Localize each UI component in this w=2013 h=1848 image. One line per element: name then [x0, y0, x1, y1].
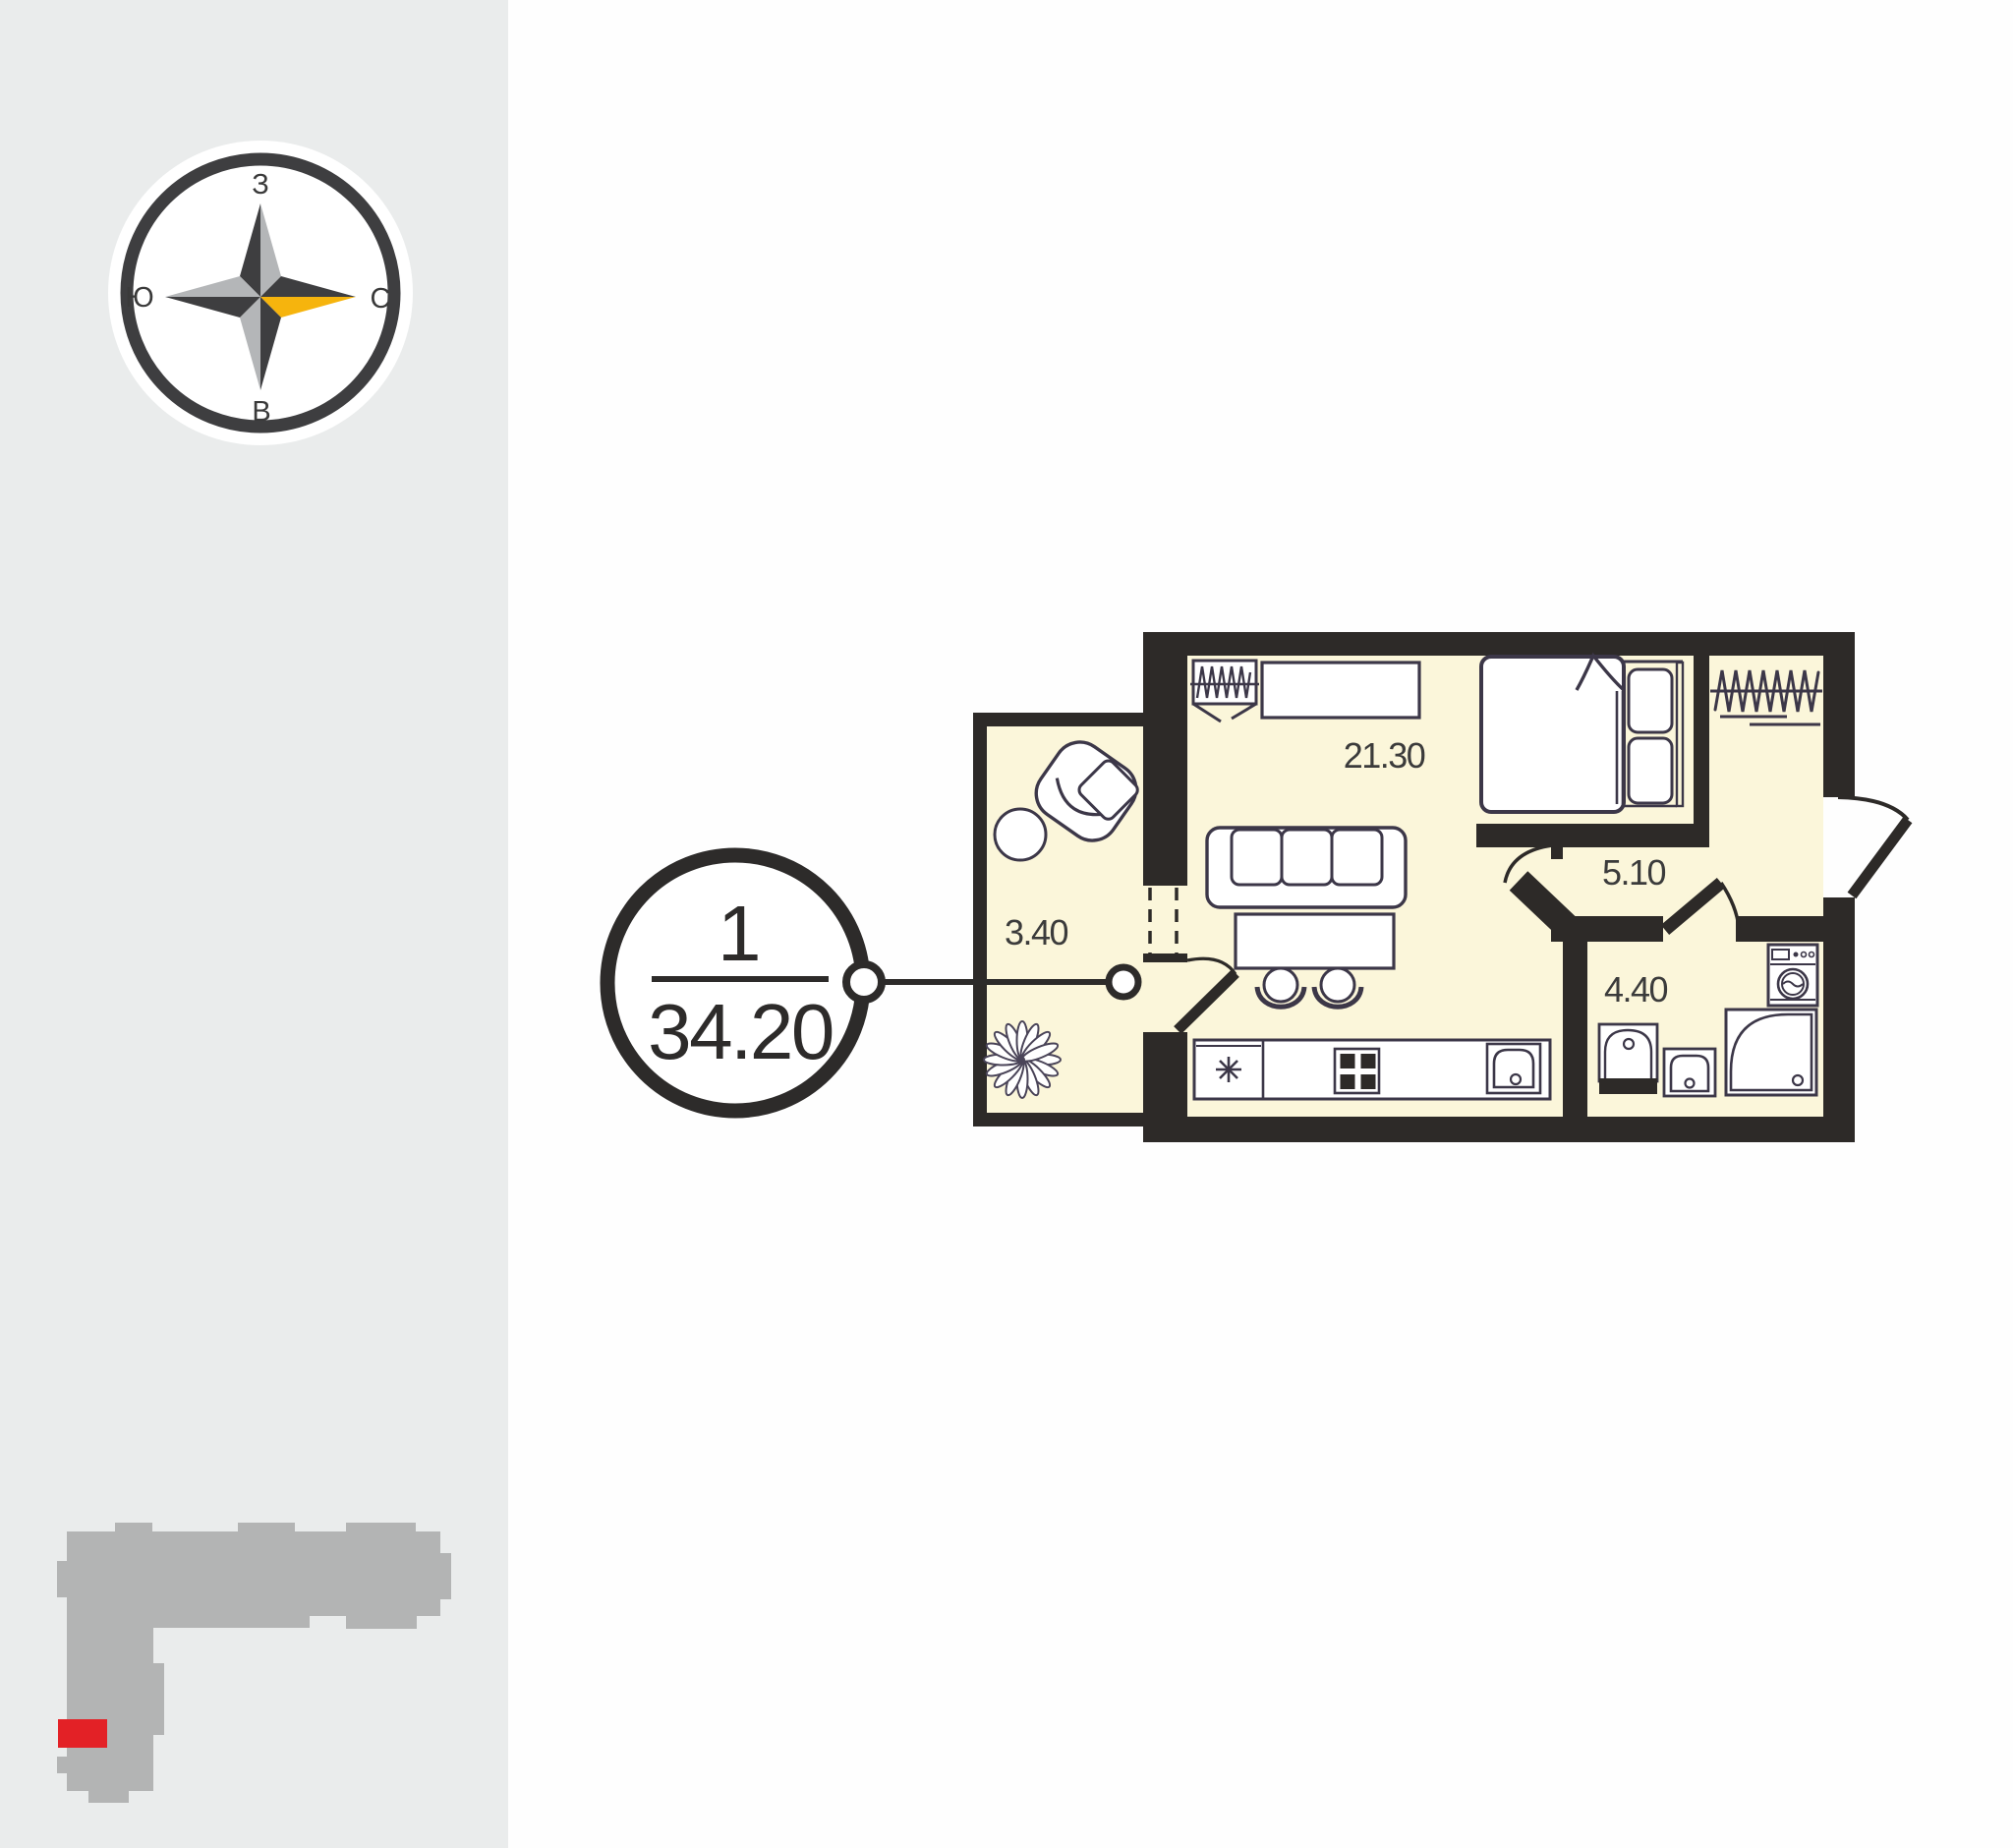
footprint-block: [346, 1616, 417, 1629]
wall-segment: [1823, 632, 1855, 797]
plant-icon: [984, 1021, 1061, 1098]
floor-plan-scene: З С В Ю: [0, 0, 2013, 1848]
footprint-block: [152, 1616, 310, 1628]
compass-label-bottom: В: [252, 396, 270, 428]
building-footprint: [57, 1523, 451, 1803]
wall-segment-bed-nook: [1694, 656, 1709, 847]
sofa-icon: [1207, 828, 1406, 907]
coffee-table-icon: [1236, 914, 1394, 968]
wall-segment-balcony: [973, 713, 1143, 726]
washing-machine-icon: [1768, 945, 1817, 1006]
footprint-block: [57, 1757, 68, 1773]
entrance-door-icon: [1838, 797, 1908, 895]
wall-segment-bed-nook: [1476, 824, 1709, 847]
compass-rose: З С В Ю: [108, 141, 413, 445]
wall-segment-bathroom: [1563, 916, 1587, 1142]
kitchen-sink-icon: [1487, 1044, 1540, 1093]
footprint-block: [440, 1553, 451, 1599]
stove-icon: [1335, 1049, 1379, 1093]
toilet-icon: [1599, 1024, 1657, 1094]
shower-icon: [1726, 1010, 1816, 1095]
footprint-block: [57, 1561, 68, 1597]
bathroom-sink-icon: [1664, 1049, 1715, 1096]
kitchen-counter-icon: [1194, 1040, 1550, 1099]
room-area-label-bathroom: 4.40: [1604, 969, 1668, 1010]
leader-end-dot: [1109, 967, 1138, 997]
bed-icon: [1481, 656, 1683, 812]
wall-segment: [1158, 1117, 1855, 1142]
apartment-location-marker: [58, 1719, 107, 1748]
room-area-label-hallway: 5.10: [1602, 852, 1666, 893]
wall-segment-bathroom: [1736, 916, 1828, 942]
page: З С В Ю: [0, 0, 2013, 1848]
wall-segment-balcony: [973, 713, 987, 1126]
room-area-label-balcony: 3.40: [1005, 912, 1068, 953]
footprint-block: [153, 1663, 164, 1735]
badge-connector-dot: [846, 964, 882, 1000]
room-area-label-living: 21.30: [1344, 735, 1425, 776]
shelf-icon: [1262, 663, 1419, 718]
compass-label-left: Ю: [125, 282, 153, 314]
footprint-block: [238, 1523, 295, 1532]
footprint-block: [67, 1531, 440, 1616]
balcony-table-icon: [995, 809, 1046, 860]
compass-label-top: З: [252, 169, 269, 201]
footprint-block: [346, 1523, 416, 1532]
badge-number: 1: [718, 890, 759, 977]
wall-segment: [1143, 953, 1187, 962]
wall-segment-balcony: [973, 1113, 1160, 1126]
footprint-block: [88, 1791, 129, 1803]
badge-area: 34.20: [648, 988, 833, 1075]
wall-segment: [1143, 632, 1855, 656]
footprint-block: [115, 1523, 152, 1532]
wall-segment: [1143, 632, 1187, 886]
wall-jamb: [1551, 847, 1563, 859]
compass-label-right: С: [371, 283, 391, 315]
